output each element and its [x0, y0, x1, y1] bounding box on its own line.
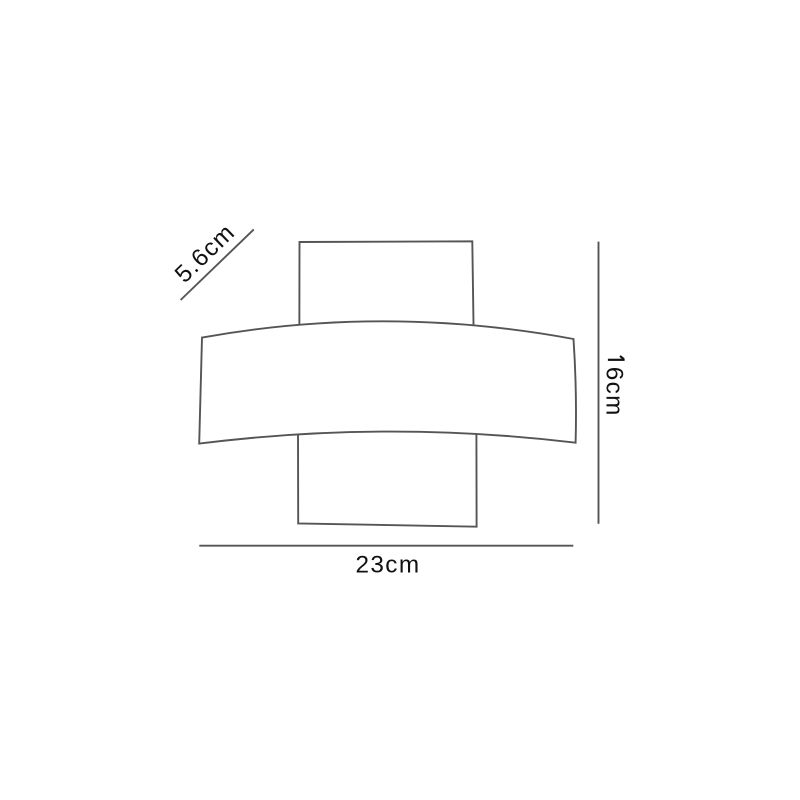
svg-text:23cm: 23cm — [355, 552, 420, 579]
